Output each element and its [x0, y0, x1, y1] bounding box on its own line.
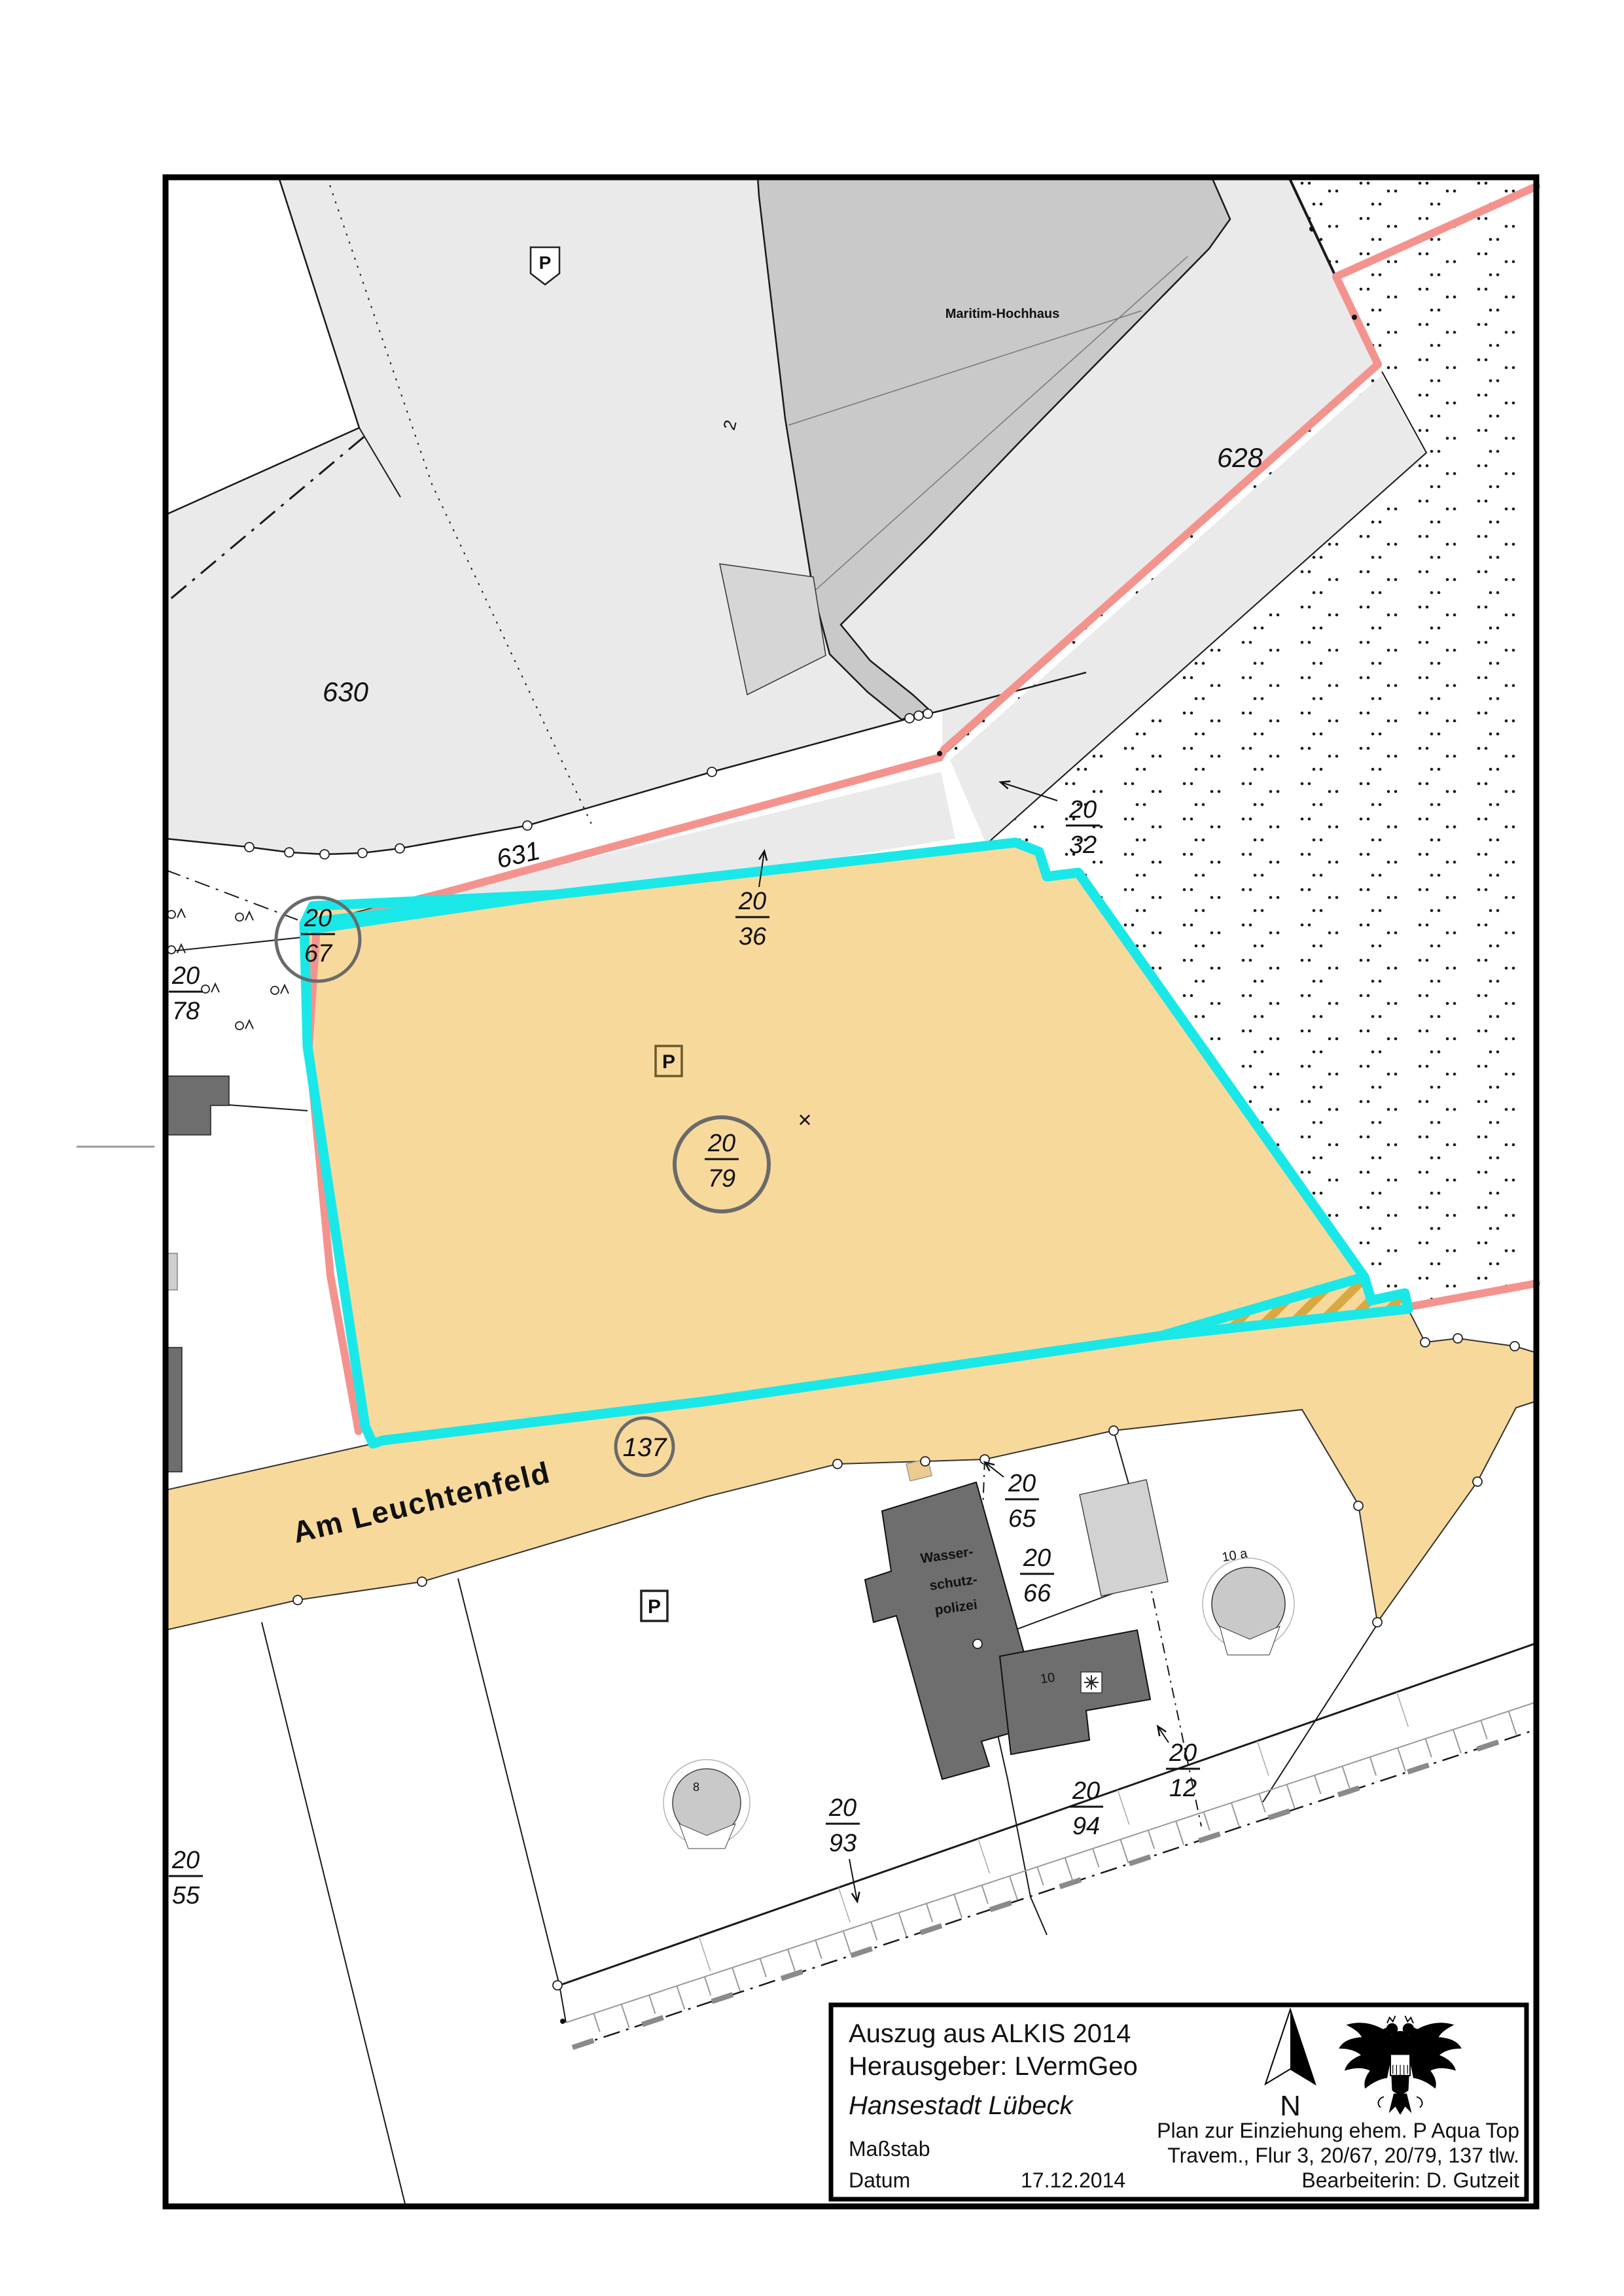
parcel-20-94-num: 20: [1072, 1777, 1100, 1805]
tree-circle: [168, 946, 175, 954]
parcel-20-94: 2094: [1069, 1777, 1103, 1840]
vertex-marker: [1109, 1426, 1118, 1435]
title-herausgeber: Herausgeber: LVermGeo: [849, 2052, 1138, 2081]
parking-square-icon-letter: P: [662, 1051, 675, 1073]
vertex-marker: [358, 848, 367, 858]
parcel-20-12-arrow: [1158, 1727, 1169, 1743]
vertex-marker: [553, 1981, 562, 1990]
slope-tick: [1509, 1711, 1517, 1735]
parcel-20-36-den: 36: [739, 923, 767, 950]
parcel-20-78-num: 20: [171, 962, 200, 990]
tree-icon: [271, 985, 289, 994]
scale-label: Maßstab: [849, 2137, 930, 2161]
vertex-marker: [285, 848, 294, 857]
slope-tick: [815, 1940, 821, 1958]
parking-square-icon-2: P: [641, 1591, 667, 1621]
tree-icon: [168, 909, 185, 918]
vertex-marker: [417, 1577, 427, 1586]
parcel-divider-tick: [1397, 1692, 1409, 1727]
slope-tick: [1148, 1830, 1154, 1849]
tree-circle: [168, 911, 175, 918]
slope-tick: [705, 1977, 711, 1995]
parcel-20-12-num: 20: [1169, 1739, 1197, 1767]
parcel-20-55-den: 55: [172, 1882, 200, 1909]
slope-tick: [788, 1949, 796, 1973]
vertex-marker: [1473, 1477, 1482, 1486]
parcel-divider-tick: [1257, 1741, 1269, 1775]
vertex-dot: [1352, 315, 1357, 320]
parcel-divider-tick: [978, 1839, 990, 1873]
slope-tick: [622, 2004, 629, 2028]
slope-tick: [1287, 1784, 1295, 1808]
boundary-2093-west: [458, 1578, 566, 2023]
vertex-marker: [395, 844, 404, 853]
parcel-20-65-num: 20: [1008, 1470, 1036, 1497]
slope-tick: [843, 1931, 851, 1955]
boundary-2055-east: [262, 1622, 406, 2206]
parcel-20-93: 2093: [826, 1794, 860, 1901]
slope-tick: [1481, 1720, 1487, 1739]
plan-line-2: Travem., Flur 3, 20/67, 20/79, 137 tlw.: [1167, 2144, 1519, 2167]
vertex-marker: [833, 1459, 842, 1469]
slope-tick: [1259, 1794, 1265, 1812]
vertex-marker: [1354, 1501, 1363, 1510]
vertex-marker: [923, 709, 932, 718]
tree-icon: [202, 984, 219, 993]
building-label-maritim: Maritim-Hochhaus: [945, 307, 1059, 321]
slope-tick: [1120, 1839, 1128, 1863]
title-hansestadt: Hansestadt Lübeck: [849, 2091, 1074, 2120]
vertex-marker: [1373, 1618, 1382, 1627]
house-number-8: 8: [693, 1781, 699, 1794]
house-number-10a: 10 a: [1221, 1546, 1249, 1565]
slope-tick: [732, 1968, 740, 1991]
vertex-marker: [980, 1455, 989, 1464]
plan-line-1: Plan zur Einziehung ehem. P Aqua Top: [1157, 2119, 1519, 2142]
vertex-marker: [914, 711, 923, 720]
tree-caret: [177, 945, 185, 953]
parcel-20-32-num: 20: [1068, 796, 1097, 824]
tree-caret: [281, 985, 289, 994]
title-block: Auszug aus ALKIS 2014 Herausgeber: LVerm…: [831, 2005, 1527, 2199]
slope-tick: [593, 2013, 599, 2032]
vertex-marker: [1453, 1334, 1462, 1343]
parcel-20-55: 2055: [169, 1847, 203, 1909]
parcel-20-66: 2066: [1020, 1544, 1054, 1607]
vertex-dot: [1309, 226, 1315, 232]
slope-tick: [871, 1922, 877, 1940]
slope-tick: [1370, 1757, 1376, 1775]
slope-tick: [1315, 1775, 1320, 1794]
title-auszug: Auszug aus ALKIS 2014: [849, 2019, 1131, 2048]
compass-star-icon: [1084, 1675, 1099, 1690]
tree-circle: [236, 913, 243, 921]
tree-caret: [211, 984, 219, 992]
slope-tick: [1065, 1858, 1073, 1881]
vertex-marker: [973, 1639, 982, 1648]
north-label: N: [1280, 2090, 1301, 2122]
parcel-20-65: 2065: [985, 1463, 1039, 1533]
parcel-divider-tick: [699, 1936, 711, 1971]
building-west-1: [168, 1076, 229, 1135]
vertex-marker: [905, 714, 914, 723]
vertex-dot: [560, 2019, 565, 2024]
slope-tick: [1453, 1730, 1461, 1753]
slope-tick: [1231, 1803, 1239, 1826]
slope-tick: [927, 1904, 932, 1922]
vertex-marker: [245, 843, 254, 852]
slope-tick: [1204, 1812, 1210, 1830]
compass-star-icon-center: [1089, 1680, 1094, 1685]
parcel-20-78: 2078: [169, 962, 203, 1025]
vertex-marker: [1421, 1338, 1430, 1347]
parcel-divider-tick: [1118, 1790, 1129, 1824]
slope-tick: [1398, 1748, 1405, 1771]
tree-icon: [236, 1020, 253, 1030]
parcel-20-94-den: 94: [1072, 1813, 1100, 1840]
slope-tick: [982, 1885, 988, 1904]
parcel-20-65-den: 65: [1008, 1505, 1036, 1533]
parcel-20-79-den: 79: [708, 1165, 735, 1192]
parcel-20-67-num: 20: [304, 905, 332, 932]
slope-tick: [760, 1958, 766, 1977]
slope-tick: [1037, 1867, 1043, 1885]
parcel-628: 628: [1217, 442, 1263, 473]
parking-square-icon-2-letter: P: [648, 1596, 661, 1618]
map-sheet: Maritim-Hochhaus2628630631Am Leuchtenfel…: [0, 0, 1624, 2296]
tree-caret: [177, 909, 185, 918]
tree-circle: [271, 986, 279, 994]
parking-shield-icon-letter: P: [539, 252, 552, 273]
plan-line-3: Bearbeiterin: D. Gutzeit: [1301, 2168, 1519, 2192]
slope-tick: [1426, 1739, 1432, 1757]
slope-tick: [1176, 1821, 1184, 1845]
parcel-137: 137: [623, 1433, 667, 1462]
slope-tick: [1093, 1849, 1099, 1867]
slope-tick: [649, 1995, 655, 2013]
parcel-20-93-arrow: [849, 1859, 857, 1901]
tree-circle: [236, 1022, 243, 1030]
parcel-20-66-num: 20: [1023, 1544, 1051, 1572]
parcel-20-93-num: 20: [828, 1794, 856, 1822]
vertex-marker: [1510, 1342, 1519, 1351]
tree-icon: [236, 912, 253, 921]
date-label: Datum: [849, 2168, 910, 2192]
vertex-marker: [320, 850, 329, 859]
house-number-10: 10: [1040, 1671, 1056, 1687]
slope-tick: [1342, 1766, 1350, 1790]
parcel-20-36-num: 20: [738, 888, 766, 915]
parcel-20-12: 2012: [1158, 1727, 1200, 1802]
parcel-divider-tick: [839, 1888, 851, 1922]
date-value: 17.12.2014: [1021, 2168, 1125, 2192]
vertex-marker: [921, 1457, 930, 1466]
parcel-20-65-arrow: [985, 1463, 1004, 1477]
parcel-20-79-num: 20: [707, 1130, 735, 1157]
vertex-marker: [293, 1595, 302, 1605]
vertex-marker: [523, 821, 532, 830]
boundary-arm: [1263, 1624, 1377, 1802]
parcel-20-55-num: 20: [171, 1847, 200, 1874]
parcel-630: 630: [323, 676, 369, 707]
parcel-20-67-den: 67: [304, 940, 333, 967]
embankment-top-line: [566, 1702, 1536, 2023]
boundary-2066-link: [1114, 1431, 1129, 1486]
slope-tick: [1010, 1876, 1017, 1900]
parcel-20-93-den: 93: [829, 1830, 856, 1857]
tree-icon: [168, 945, 185, 954]
vertex-marker: [707, 767, 716, 776]
building-2066: [1080, 1480, 1168, 1596]
slope-tick: [898, 1913, 906, 1936]
tree-caret: [245, 912, 253, 920]
tree-caret: [245, 1020, 253, 1029]
cross-mark: ×: [798, 1106, 811, 1133]
boundary-2078-mid: [166, 937, 308, 952]
parcel-20-32-den: 32: [1069, 831, 1097, 859]
slope-tick: [954, 1894, 962, 1918]
parcel-20-12-den: 12: [1169, 1775, 1197, 1802]
slope-tick: [677, 1986, 684, 2009]
parcel-20-66-den: 66: [1023, 1580, 1051, 1607]
parcel-20-78-den: 78: [172, 998, 200, 1025]
vertex-dot: [937, 751, 942, 756]
tree-circle: [202, 985, 209, 993]
